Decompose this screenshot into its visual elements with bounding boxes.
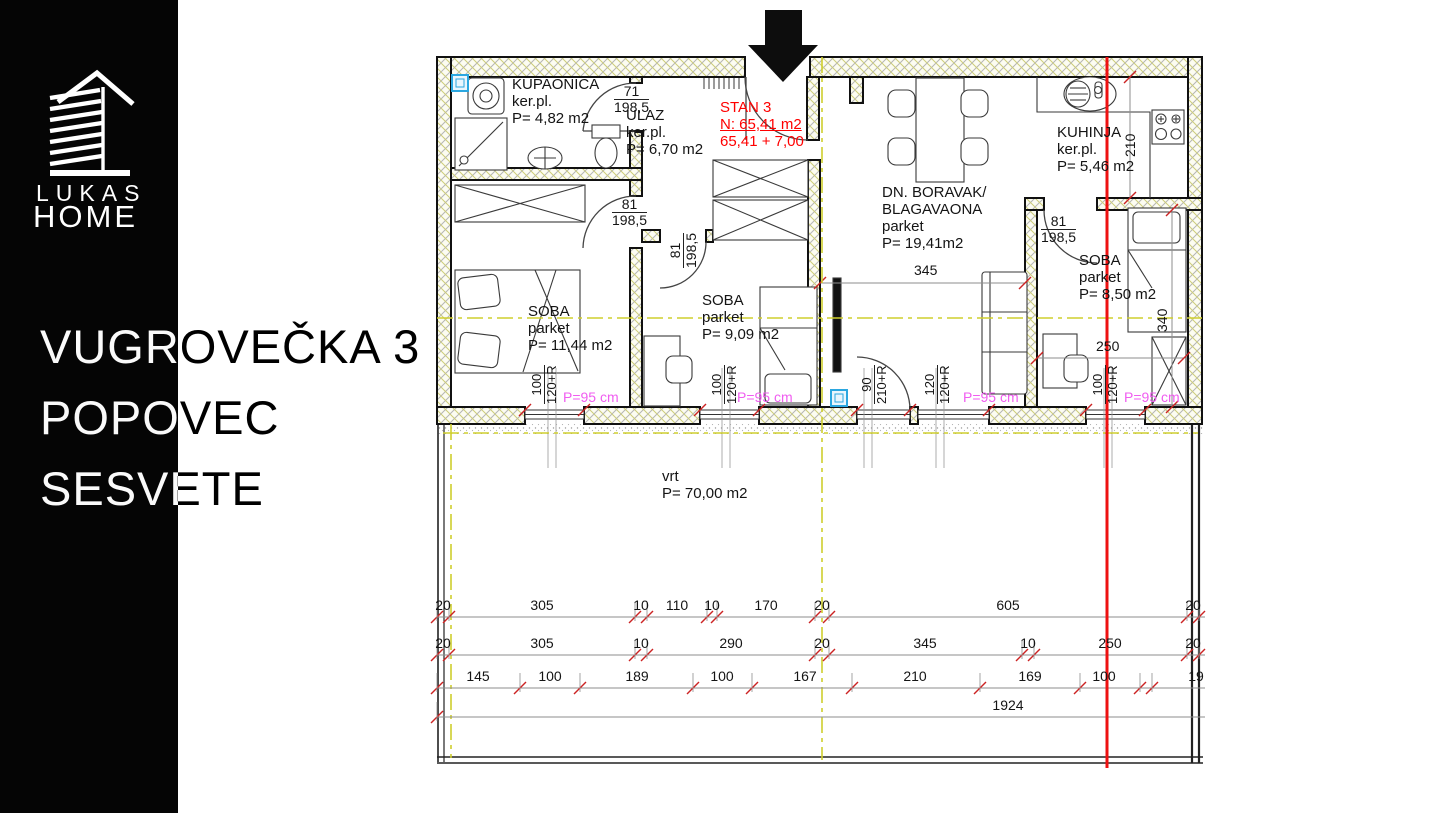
interior-dimension-ticks <box>519 71 1190 416</box>
garden-border <box>437 420 1203 763</box>
bedroom3-desk <box>1043 334 1088 388</box>
bedroom1-bed <box>455 270 580 373</box>
entrance-arrow-icon <box>748 10 818 82</box>
real-estate-floor-plan-slide: LUKAS HOME VUGROVEČKA 3 POPOVEC SESVETE <box>0 0 1445 813</box>
bedroom1-wardrobe <box>455 185 585 222</box>
bedroom3-bed <box>1128 208 1186 332</box>
shower <box>455 118 507 170</box>
bathroom-sink <box>528 147 562 169</box>
utility-box <box>452 75 468 91</box>
sofa <box>982 272 1027 394</box>
bedroom2-bed <box>760 287 817 405</box>
dining-table <box>888 78 988 182</box>
floor-plan-drawing <box>0 0 1445 813</box>
dimension-rows <box>431 602 1205 723</box>
hall-wardrobe <box>713 160 808 197</box>
utility-box-2 <box>831 390 847 406</box>
bedroom2-desk <box>644 336 692 406</box>
stove <box>1152 110 1184 144</box>
hall-wardrobe-2 <box>713 200 808 240</box>
bedroom3-wardrobe <box>1152 337 1186 405</box>
washing-machine <box>468 78 504 114</box>
tv-unit <box>833 278 841 372</box>
radiator-comb <box>704 78 739 89</box>
toilet <box>592 125 620 168</box>
